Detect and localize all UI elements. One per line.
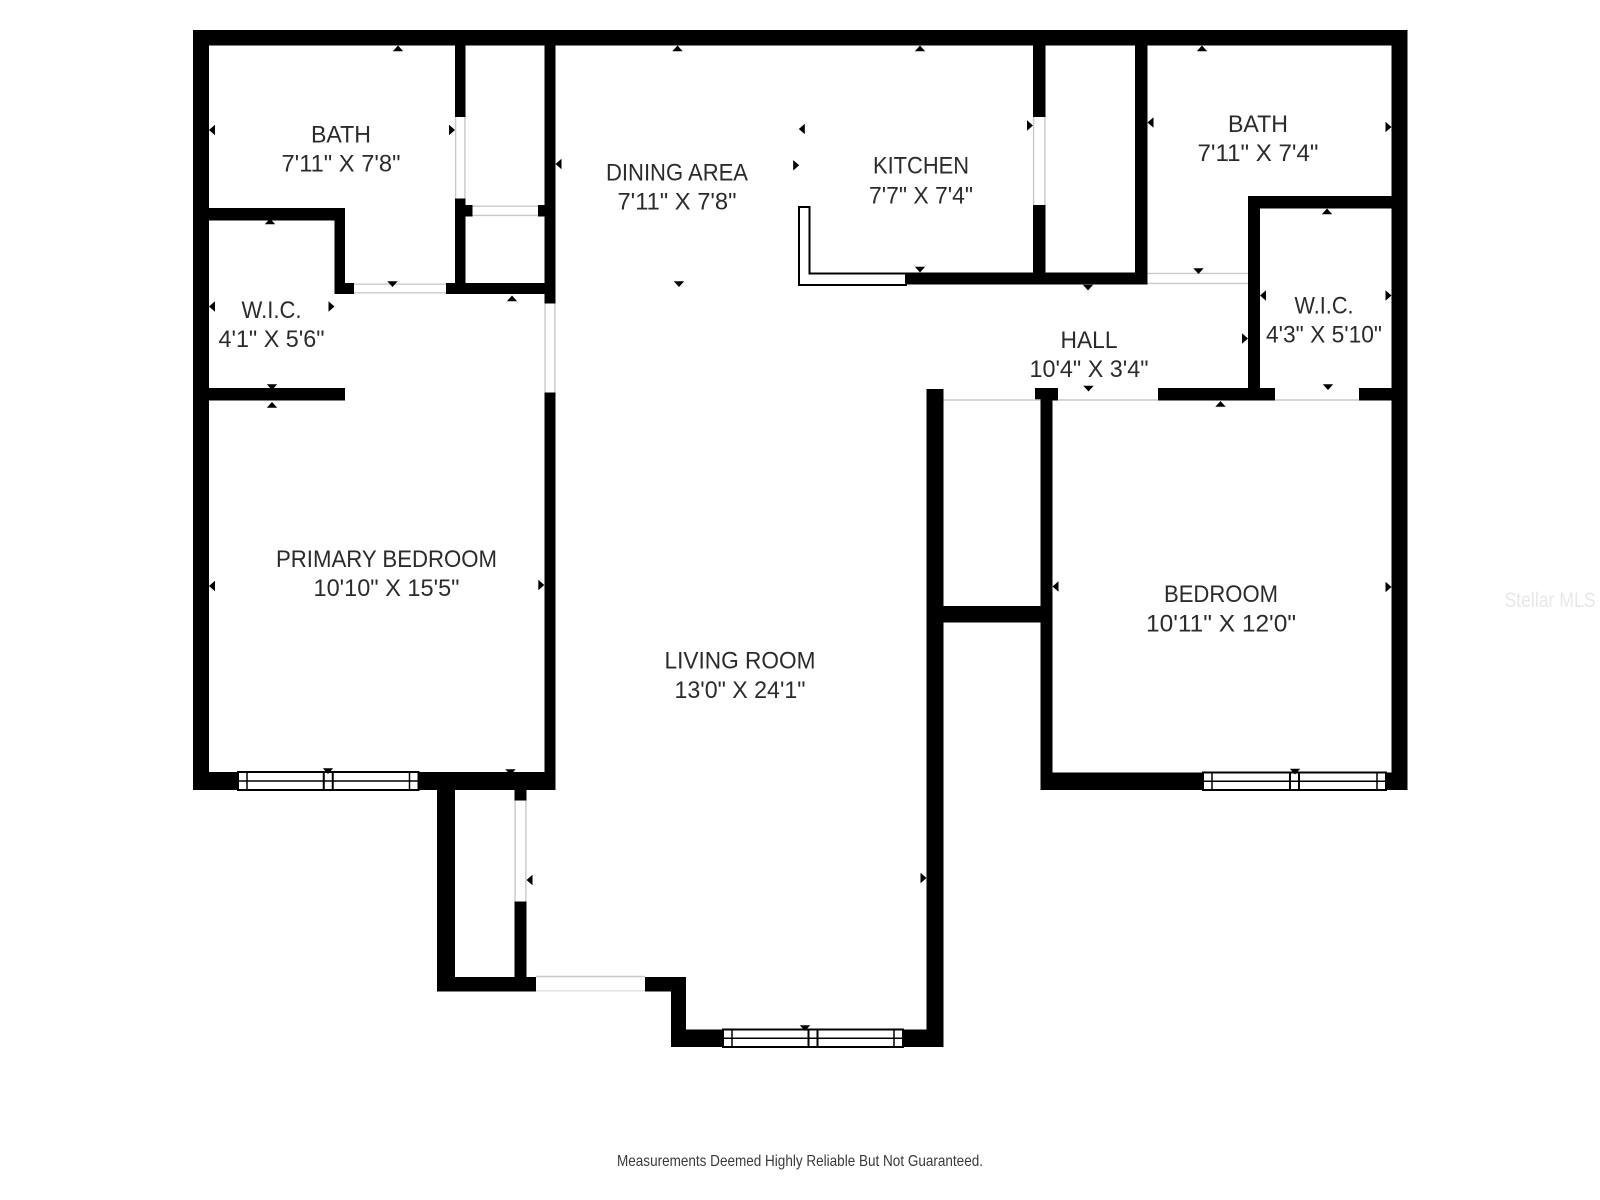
svg-text:LIVING ROOM: LIVING ROOM [665,648,816,675]
svg-text:BATH: BATH [311,122,371,149]
svg-text:7'11" X 7'4": 7'11" X 7'4" [1198,140,1319,167]
svg-text:4'3" X 5'10": 4'3" X 5'10" [1266,322,1382,349]
svg-text:Measurements Deemed Highly Rel: Measurements Deemed Highly Reliable But … [617,1153,983,1170]
svg-text:DINING AREA: DINING AREA [606,160,748,187]
svg-text:HALL: HALL [1061,327,1118,354]
svg-text:10'10" X 15'5": 10'10" X 15'5" [314,575,460,602]
svg-text:4'1" X 5'6": 4'1" X 5'6" [219,326,325,353]
svg-text:W.I.C.: W.I.C. [242,297,302,324]
svg-text:7'11" X 7'8": 7'11" X 7'8" [618,189,737,216]
svg-text:BEDROOM: BEDROOM [1164,581,1278,608]
svg-text:W.I.C.: W.I.C. [1295,293,1354,320]
svg-text:BATH: BATH [1228,111,1288,138]
svg-text:10'11" X 12'0": 10'11" X 12'0" [1146,611,1296,638]
svg-text:PRIMARY BEDROOM: PRIMARY BEDROOM [276,546,497,573]
svg-text:7'11" X 7'8": 7'11" X 7'8" [282,151,401,178]
svg-text:Stellar MLS: Stellar MLS [1505,589,1596,612]
svg-text:KITCHEN: KITCHEN [873,153,969,180]
svg-text:13'0" X 24'1": 13'0" X 24'1" [675,677,806,704]
svg-text:7'7" X 7'4": 7'7" X 7'4" [869,183,973,210]
svg-text:10'4" X 3'4": 10'4" X 3'4" [1030,356,1149,383]
